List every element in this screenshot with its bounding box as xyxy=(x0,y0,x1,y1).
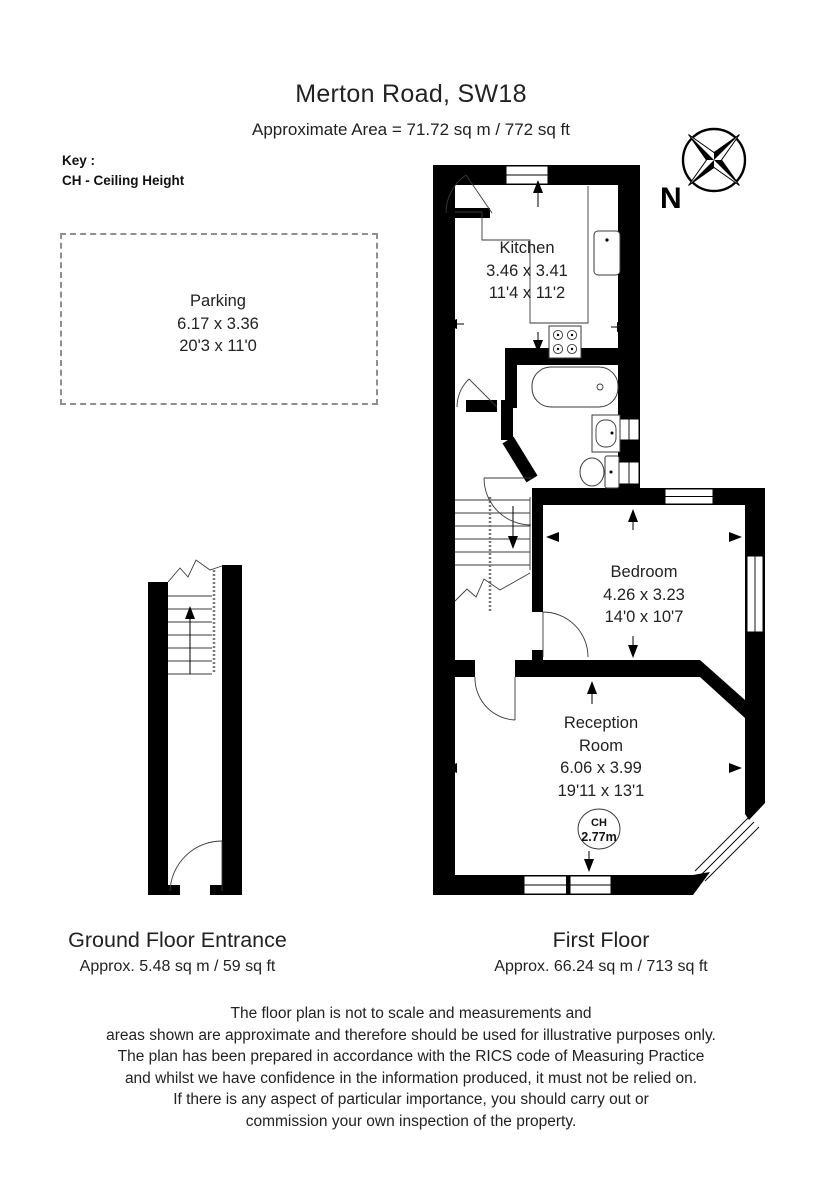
room-dims-metric: 3.46 x 3.41 xyxy=(377,260,677,283)
room-dims-metric: 4.26 x 3.23 xyxy=(494,584,794,607)
front-door-arc xyxy=(170,841,222,891)
ground-floor-plan xyxy=(140,555,250,905)
room-dims-imperial: 14'0 x 10'7 xyxy=(494,606,794,629)
disclaimer-line: The plan has been prepared in accordance… xyxy=(0,1046,822,1068)
room-name: Reception xyxy=(451,712,751,735)
parking-label: Parking 6.17 x 3.36 20'3 x 11'0 xyxy=(68,290,368,358)
disclaimer-line: The floor plan is not to scale and measu… xyxy=(0,1003,822,1025)
reception-window xyxy=(524,876,567,894)
stair-direction-arrow xyxy=(508,536,518,549)
page-title: Merton Road, SW18 xyxy=(0,80,822,109)
room-name: Bedroom xyxy=(494,561,794,584)
kitchen-label: Kitchen 3.46 x 3.41 11'4 x 11'2 xyxy=(377,237,677,305)
bathroom-window xyxy=(619,462,639,484)
bathroom-window xyxy=(619,419,639,440)
key-heading: Key : xyxy=(62,151,184,171)
bathroom-fixtures xyxy=(532,367,620,488)
room-dims-imperial: 11'4 x 11'2 xyxy=(377,282,677,305)
toilet-icon xyxy=(580,456,619,488)
kitchen-window xyxy=(506,166,548,184)
reception-window xyxy=(570,876,611,894)
room-name: Room xyxy=(451,735,751,758)
ground-floor-area: Approx. 5.48 sq m / 59 sq ft xyxy=(40,958,315,976)
room-dims-metric: 6.06 x 3.99 xyxy=(451,757,751,780)
room-dims-imperial: 19'11 x 13'1 xyxy=(451,780,751,803)
walls xyxy=(148,565,242,895)
disclaimer-line: commission your own inspection of the pr… xyxy=(0,1111,822,1133)
reception-label: Reception Room 6.06 x 3.99 19'11 x 13'1 xyxy=(451,712,751,802)
disclaimer-line: and whilst we have confidence in the inf… xyxy=(0,1068,822,1090)
disclaimer-line: If there is any aspect of particular imp… xyxy=(0,1089,822,1111)
window-mullion xyxy=(566,875,570,895)
bathtub-icon xyxy=(532,367,618,407)
first-floor-title: First Floor xyxy=(463,928,739,953)
ch-label: CH xyxy=(591,817,607,829)
first-floor-area: Approx. 66.24 sq m / 713 sq ft xyxy=(463,958,739,976)
hob-icon xyxy=(549,326,581,358)
bedroom-label: Bedroom 4.26 x 3.23 14'0 x 10'7 xyxy=(494,561,794,629)
stair-direction-arrow xyxy=(185,606,195,619)
room-name: Kitchen xyxy=(377,237,677,260)
room-name: Parking xyxy=(68,290,368,313)
floorplan-page: Merton Road, SW18 Approximate Area = 71.… xyxy=(0,0,822,1200)
key-entry: CH - Ceiling Height xyxy=(62,171,184,191)
basin-icon xyxy=(592,415,620,452)
bedroom-top-window xyxy=(665,489,713,504)
stairs-ground-floor xyxy=(168,560,222,674)
ch-value: 2.77m xyxy=(581,830,616,844)
bay-window xyxy=(695,817,759,881)
ceiling-height-badge: CH 2.77m xyxy=(578,809,620,849)
ground-floor-title: Ground Floor Entrance xyxy=(40,928,315,953)
room-dims-metric: 6.17 x 3.36 xyxy=(68,313,368,336)
disclaimer: The floor plan is not to scale and measu… xyxy=(0,1003,822,1133)
room-dims-imperial: 20'3 x 11'0 xyxy=(68,335,368,358)
key-block: Key : CH - Ceiling Height xyxy=(62,151,184,191)
disclaimer-line: areas shown are approximate and therefor… xyxy=(0,1025,822,1047)
